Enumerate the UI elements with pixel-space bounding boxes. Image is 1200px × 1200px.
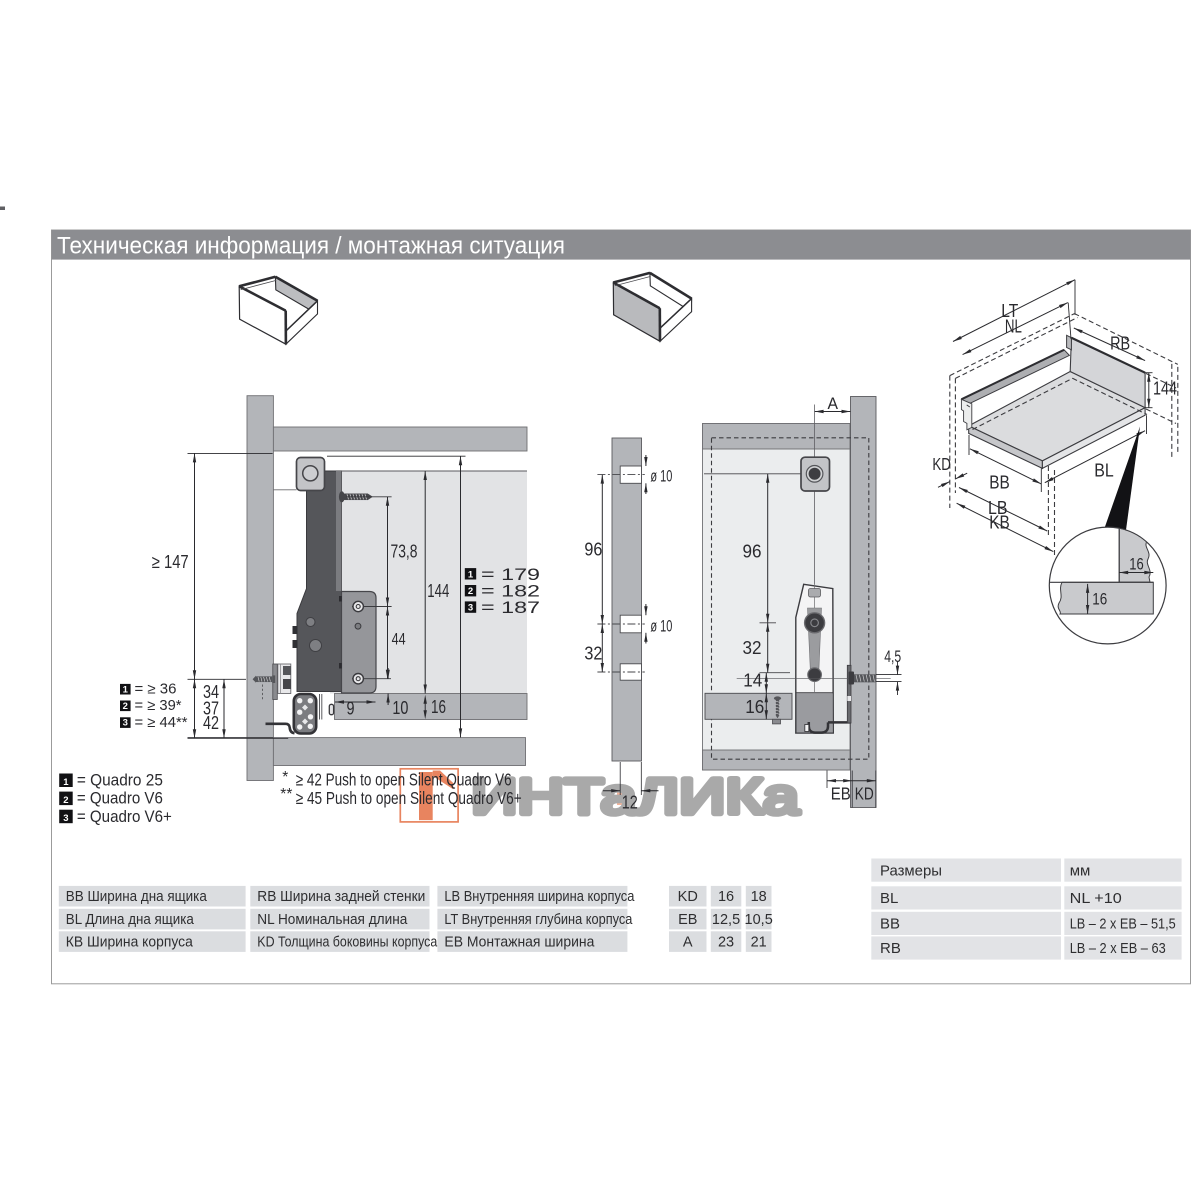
svg-text:KD Толщина боковины корпуса: KD Толщина боковины корпуса <box>257 935 438 951</box>
svg-text:73,8: 73,8 <box>391 542 418 562</box>
svg-text:23: 23 <box>718 935 734 951</box>
svg-text:32: 32 <box>743 637 762 658</box>
svg-text:10,5: 10,5 <box>745 912 773 928</box>
svg-text:A: A <box>683 935 693 951</box>
svg-text:Размеры: Размеры <box>880 862 942 879</box>
svg-text:3: 3 <box>468 603 473 614</box>
svg-text:9: 9 <box>347 699 355 719</box>
svg-text:EB: EB <box>831 784 851 804</box>
svg-text:42: 42 <box>203 713 219 733</box>
svg-text:= ≥ 39*: = ≥ 39* <box>135 698 182 714</box>
svg-text:= ≥ 44**: = ≥ 44** <box>135 715 188 731</box>
svg-text:144: 144 <box>427 580 449 601</box>
svg-text:16: 16 <box>1092 591 1107 609</box>
svg-text:BL: BL <box>880 890 898 907</box>
svg-text:12: 12 <box>622 792 638 812</box>
svg-text:KB: KB <box>989 512 1010 532</box>
svg-text:мм: мм <box>1070 862 1091 879</box>
svg-text:BB: BB <box>989 473 1010 493</box>
svg-text:2: 2 <box>63 795 68 806</box>
svg-text:КВ Ширина корпуса: КВ Ширина корпуса <box>66 935 194 951</box>
svg-text:3: 3 <box>63 813 68 824</box>
svg-text:≥ 45 Push to open Silent Quadr: ≥ 45 Push to open Silent Quadro V6+ <box>296 788 522 808</box>
svg-text:2: 2 <box>468 586 473 597</box>
svg-text:≥ 42 Push to open Silent Quadr: ≥ 42 Push to open Silent Quadro V6 <box>296 769 512 789</box>
svg-text:LT Внутренняя глубина корпуса: LT Внутренняя глубина корпуса <box>444 912 633 928</box>
svg-text:NL +10: NL +10 <box>1070 890 1122 907</box>
svg-text:= ≥ 36: = ≥ 36 <box>135 682 177 698</box>
svg-text:LB – 2 x EB – 63: LB – 2 x EB – 63 <box>1070 940 1166 957</box>
svg-text:LB Внутренняя ширина корпуса: LB Внутренняя ширина корпуса <box>444 889 635 905</box>
svg-text:1: 1 <box>468 569 474 580</box>
svg-text:KD: KD <box>678 889 698 905</box>
svg-text:32: 32 <box>584 643 602 664</box>
svg-text:EB Монтажная ширина: EB Монтажная ширина <box>444 935 595 951</box>
svg-text:KD: KD <box>932 454 951 474</box>
svg-text:21: 21 <box>751 935 767 951</box>
svg-text:= Quadro V6: = Quadro V6 <box>77 789 163 808</box>
svg-text:RB Ширина задней стенки: RB Ширина задней стенки <box>257 889 425 905</box>
svg-text:12,5: 12,5 <box>712 912 740 928</box>
svg-text:BB: BB <box>880 916 900 933</box>
svg-text:NL Номинальная длина: NL Номинальная длина <box>257 912 408 928</box>
svg-text:ø 10: ø 10 <box>650 467 672 486</box>
svg-text:16: 16 <box>745 696 764 717</box>
svg-text:16: 16 <box>1129 556 1144 574</box>
svg-text:= 187: = 187 <box>481 599 540 617</box>
svg-text:EB: EB <box>678 912 697 928</box>
svg-text:1: 1 <box>63 777 69 788</box>
svg-text:NL: NL <box>1005 316 1022 336</box>
svg-text:14: 14 <box>743 669 762 690</box>
svg-text:= Quadro V6+: = Quadro V6+ <box>77 807 172 826</box>
svg-text:ø 10: ø 10 <box>650 616 672 635</box>
svg-text:LB – 2 x EB – 51,5: LB – 2 x EB – 51,5 <box>1070 916 1176 933</box>
svg-text:144: 144 <box>1153 379 1177 399</box>
svg-text:BB Ширина дна ящика: BB Ширина дна ящика <box>66 889 208 905</box>
svg-text:A: A <box>828 394 839 413</box>
svg-text:RB: RB <box>1110 334 1130 354</box>
svg-text:3: 3 <box>123 718 128 729</box>
svg-text:≥ 147: ≥ 147 <box>152 551 189 572</box>
svg-text:10: 10 <box>392 698 408 718</box>
svg-text:2: 2 <box>123 701 128 712</box>
svg-text:KD: KD <box>855 784 874 804</box>
svg-text:Техническая информация / монта: Техническая информация / монтажная ситуа… <box>57 233 565 260</box>
svg-text:= 182: = 182 <box>481 583 540 601</box>
svg-text:= Quadro 25: = Quadro 25 <box>77 771 163 790</box>
svg-text:44: 44 <box>392 629 406 648</box>
svg-text:16: 16 <box>431 697 446 717</box>
svg-text:96: 96 <box>584 539 602 560</box>
svg-text:4,5: 4,5 <box>884 647 901 666</box>
svg-text:*: * <box>282 769 288 786</box>
svg-text:BL Длина дна ящика: BL Длина дна ящика <box>66 912 195 928</box>
svg-text:RB: RB <box>880 940 901 957</box>
svg-text:96: 96 <box>743 541 762 562</box>
svg-text:= 179: = 179 <box>481 566 540 584</box>
svg-text:18: 18 <box>751 889 767 905</box>
svg-text:16: 16 <box>718 889 734 905</box>
svg-text:**: ** <box>280 786 292 803</box>
svg-text:1: 1 <box>123 684 129 695</box>
svg-text:BL: BL <box>1094 460 1114 480</box>
